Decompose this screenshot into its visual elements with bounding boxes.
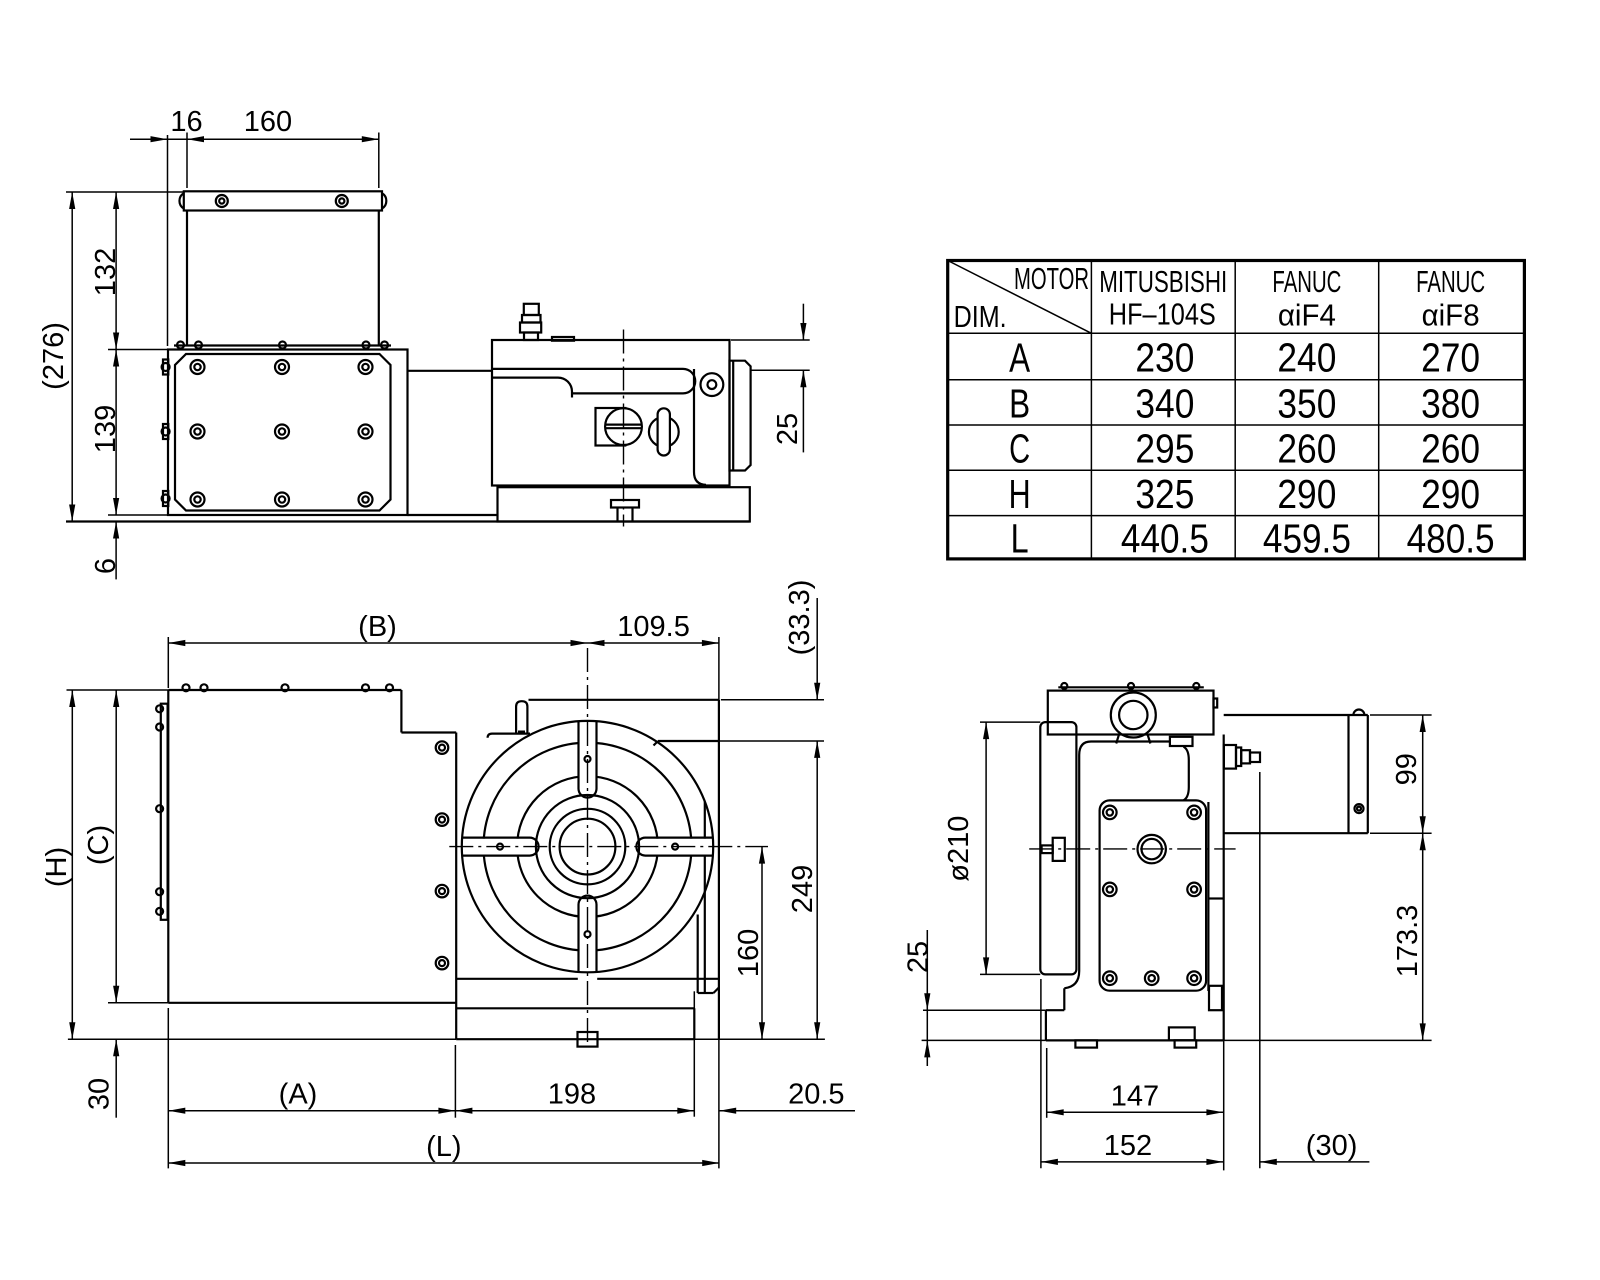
svg-text:173.3: 173.3 xyxy=(1392,905,1424,978)
svg-text:290: 290 xyxy=(1277,471,1336,517)
svg-text:380: 380 xyxy=(1421,380,1480,426)
svg-text:16: 16 xyxy=(170,106,202,138)
svg-text:DIM.: DIM. xyxy=(954,299,1007,334)
svg-text:270: 270 xyxy=(1421,335,1480,381)
svg-text:(33.3): (33.3) xyxy=(784,580,816,656)
svg-text:(H): (H) xyxy=(41,847,73,887)
svg-text:440.5: 440.5 xyxy=(1121,515,1209,561)
svg-text:290: 290 xyxy=(1421,471,1480,517)
svg-text:C: C xyxy=(1009,426,1030,472)
svg-text:(B): (B) xyxy=(358,611,397,643)
svg-text:αiF4: αiF4 xyxy=(1278,298,1336,333)
svg-text:L: L xyxy=(1011,515,1029,561)
svg-text:(A): (A) xyxy=(279,1079,318,1111)
svg-text:B: B xyxy=(1009,380,1030,426)
svg-text:152: 152 xyxy=(1104,1130,1152,1162)
svg-text:H: H xyxy=(1009,471,1031,517)
svg-text:FANUC: FANUC xyxy=(1272,264,1341,299)
svg-text:6: 6 xyxy=(90,558,122,574)
svg-text:25: 25 xyxy=(903,941,935,973)
svg-text:240: 240 xyxy=(1277,335,1336,381)
svg-text:(276): (276) xyxy=(38,322,70,390)
svg-text:HF–104S: HF–104S xyxy=(1109,297,1216,332)
svg-text:325: 325 xyxy=(1135,471,1194,517)
svg-text:480.5: 480.5 xyxy=(1407,515,1495,561)
svg-text:(30): (30) xyxy=(1306,1130,1358,1162)
svg-text:295: 295 xyxy=(1135,426,1194,472)
svg-text:FANUC: FANUC xyxy=(1416,264,1485,299)
svg-text:249: 249 xyxy=(787,865,819,913)
svg-text:260: 260 xyxy=(1421,426,1480,472)
svg-text:340: 340 xyxy=(1135,380,1194,426)
svg-text:(C): (C) xyxy=(83,825,115,865)
svg-text:160: 160 xyxy=(244,106,292,138)
svg-text:MITUSBISHI: MITUSBISHI xyxy=(1099,264,1227,299)
svg-text:(L): (L) xyxy=(426,1131,461,1163)
svg-text:109.5: 109.5 xyxy=(617,611,690,643)
svg-text:260: 260 xyxy=(1277,426,1336,472)
svg-text:25: 25 xyxy=(772,413,804,445)
svg-text:230: 230 xyxy=(1135,335,1194,381)
svg-text:147: 147 xyxy=(1111,1080,1159,1112)
svg-text:350: 350 xyxy=(1277,380,1336,426)
svg-text:99: 99 xyxy=(1391,753,1423,785)
svg-text:160: 160 xyxy=(733,929,765,977)
svg-text:139: 139 xyxy=(90,405,122,453)
svg-text:459.5: 459.5 xyxy=(1263,515,1351,561)
svg-text:198: 198 xyxy=(548,1079,596,1111)
svg-text:30: 30 xyxy=(84,1078,116,1110)
svg-text:ø210: ø210 xyxy=(943,816,975,882)
svg-text:A: A xyxy=(1009,335,1030,381)
svg-text:20.5: 20.5 xyxy=(788,1079,844,1111)
svg-text:132: 132 xyxy=(90,248,122,296)
svg-text:αiF8: αiF8 xyxy=(1422,298,1480,333)
svg-text:MOTOR: MOTOR xyxy=(1014,261,1089,296)
